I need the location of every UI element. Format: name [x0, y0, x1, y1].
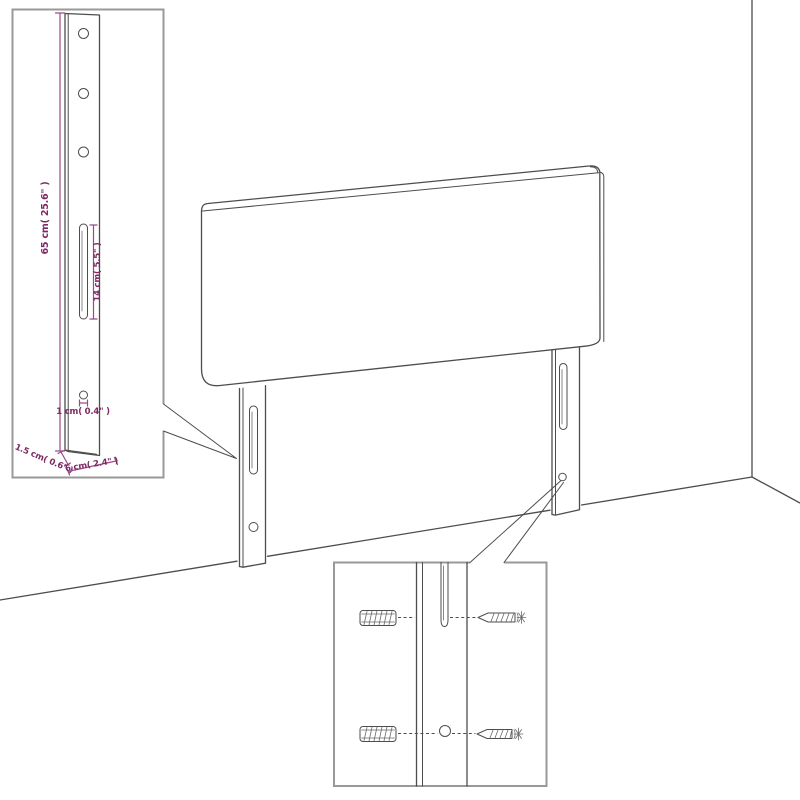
screw-top-head — [517, 612, 526, 624]
left-leg-slot — [250, 406, 258, 474]
wall-plug-bottom — [360, 727, 396, 742]
screw-bottom-head — [514, 728, 523, 740]
enlarged-leg — [65, 14, 100, 456]
panel-outline — [202, 166, 601, 386]
headboard-panel — [202, 166, 604, 386]
panel-top-edge-inner-line — [203, 173, 599, 211]
dimension-leg-width: 6 cm( 2.4" ) — [64, 456, 119, 475]
closeup-hole — [440, 726, 451, 737]
dimension-slot-length: 14 cm( 5.5" ) — [90, 225, 103, 319]
enlarged-leg-slot — [80, 224, 88, 319]
leg-detail-callout-lines — [164, 404, 237, 459]
leg-detail-inset: 65 cm( 25.6" ) 14 cm( 5.5" ) 1 cm( 0.4" … — [13, 10, 237, 478]
dimension-leg-height: 65 cm( 25.6" ) — [40, 13, 65, 451]
closeup-leg-edges — [417, 563, 468, 787]
enlarged-leg-hole-2 — [79, 89, 89, 99]
leg-height-dim-line — [56, 13, 65, 451]
enlarged-leg-hole-1 — [79, 29, 89, 39]
floor-line-left — [0, 477, 752, 600]
left-leg — [240, 386, 266, 568]
screw-top-threads — [491, 614, 514, 622]
right-leg-edges — [552, 347, 580, 515]
floor-line-right — [752, 477, 800, 503]
dimension-hole-diameter: 1 cm( 0.4" ) — [56, 400, 110, 417]
mounting-inset-border — [334, 563, 547, 787]
headboard-diagram: 65 cm( 25.6" ) 14 cm( 5.5" ) 1 cm( 0.4" … — [0, 0, 800, 800]
enlarged-leg-bottom-hole — [80, 391, 88, 399]
closeup-slot — [441, 563, 448, 627]
screw-bottom-threads — [490, 730, 512, 738]
leg-height-label: 65 cm( 25.6" ) — [40, 182, 51, 255]
diagram-canvas: 65 cm( 25.6" ) 14 cm( 5.5" ) 1 cm( 0.4" … — [0, 0, 800, 800]
closeup-leg — [417, 563, 468, 787]
enlarged-leg-hole-3 — [79, 147, 89, 157]
screw-top — [478, 612, 526, 624]
left-leg-hole — [249, 523, 258, 532]
right-leg-slot — [560, 364, 568, 430]
right-leg-hole — [559, 473, 567, 481]
right-leg-bottom-edge — [552, 510, 580, 515]
wall-plug-bottom-threads — [362, 727, 395, 741]
slot-length-label: 14 cm( 5.5" ) — [93, 242, 103, 302]
mounting-callout-lines — [470, 481, 564, 563]
leg-width-label: 6 cm( 2.4" ) — [64, 456, 119, 474]
hole-diameter-dim-line — [80, 400, 88, 406]
right-leg — [552, 347, 580, 515]
screw-bottom — [477, 728, 523, 740]
wall-corner — [0, 0, 800, 600]
wall-plug-top — [360, 611, 396, 626]
hole-diameter-label: 1 cm( 0.4" ) — [56, 407, 110, 417]
wall-plug-top-threads — [362, 611, 395, 625]
